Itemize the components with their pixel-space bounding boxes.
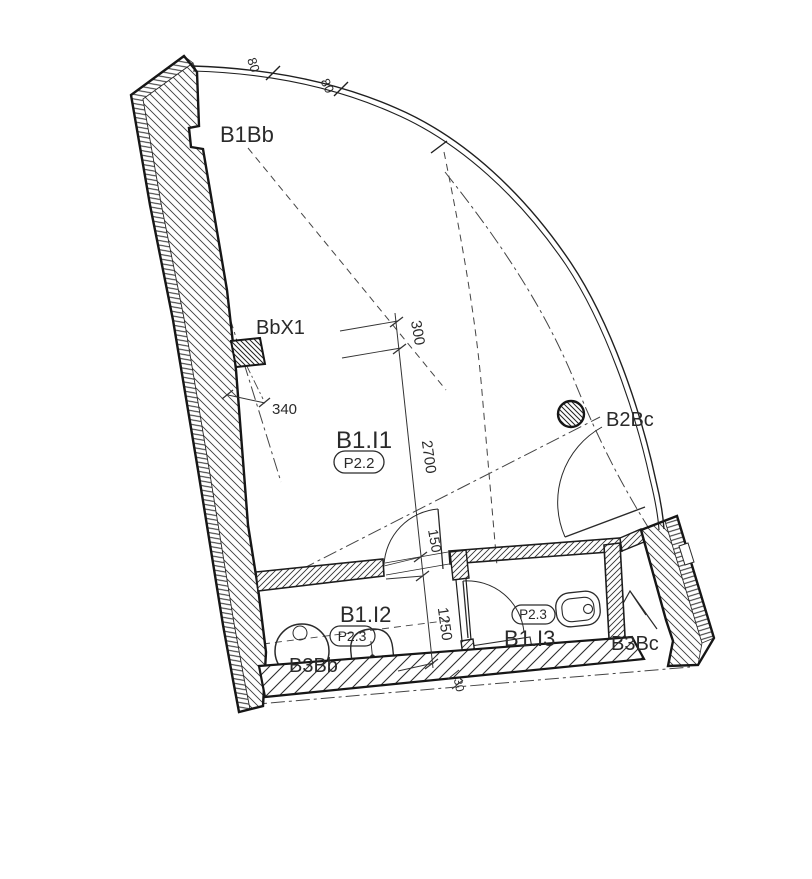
- column-circle: [558, 401, 584, 427]
- floor-plan-canvas: B1Bb BbX1 B1.I1 P2.2 B2Bc B1.I2 P2.3 B3B…: [0, 0, 812, 879]
- sink: [554, 590, 601, 628]
- dim-pier-offset: 340: [272, 401, 297, 418]
- label-balcony: B1Bb: [220, 122, 274, 147]
- axis-line-facade: [445, 172, 648, 527]
- washbasin-faucet: [293, 626, 307, 640]
- dim-facade-2: 80: [318, 76, 338, 96]
- door-arc-facade: [558, 427, 602, 537]
- projection-line-slab: [444, 152, 497, 566]
- projection-line-balcony: [248, 148, 446, 390]
- label-shaft-wc: B3Bc: [611, 633, 659, 655]
- label-room-b1i1: B1.I1: [336, 427, 392, 454]
- partition-b1i3-top: [449, 538, 622, 564]
- label-room-b1i2: B1.I2: [340, 602, 391, 627]
- dim-top-offset: 300: [407, 319, 428, 347]
- partition-b1i2-top: [256, 559, 384, 591]
- label-pier: BbX1: [256, 317, 305, 339]
- dim-line-main: [395, 313, 433, 668]
- dim-slab-gap: 30: [451, 677, 468, 693]
- door-arc-wc: [463, 581, 524, 632]
- label-tag-b1i1: P2.2: [344, 455, 375, 472]
- label-tag-b1i3: P2.3: [519, 607, 547, 622]
- label-tag-b1i2: P2.3: [338, 628, 367, 644]
- facade-dim-ticks: [266, 66, 447, 153]
- dim-door-gap: 150: [425, 528, 445, 554]
- dim-bath-depth: 1250: [434, 606, 455, 641]
- label-room-b1i3: B1.I3: [504, 626, 555, 651]
- dim-room-depth: 2700: [418, 439, 439, 474]
- left-exterior-wall: [131, 56, 266, 712]
- label-column: B2Bc: [606, 409, 654, 431]
- partition-mid-top-block: [450, 550, 469, 580]
- label-shaft-bath: B3Bb: [289, 655, 338, 677]
- floor-plan-sheet: B1Bb BbX1 B1.I1 P2.2 B2Bc B1.I2 P2.3 B3B…: [0, 0, 812, 879]
- pier-block: [231, 338, 265, 367]
